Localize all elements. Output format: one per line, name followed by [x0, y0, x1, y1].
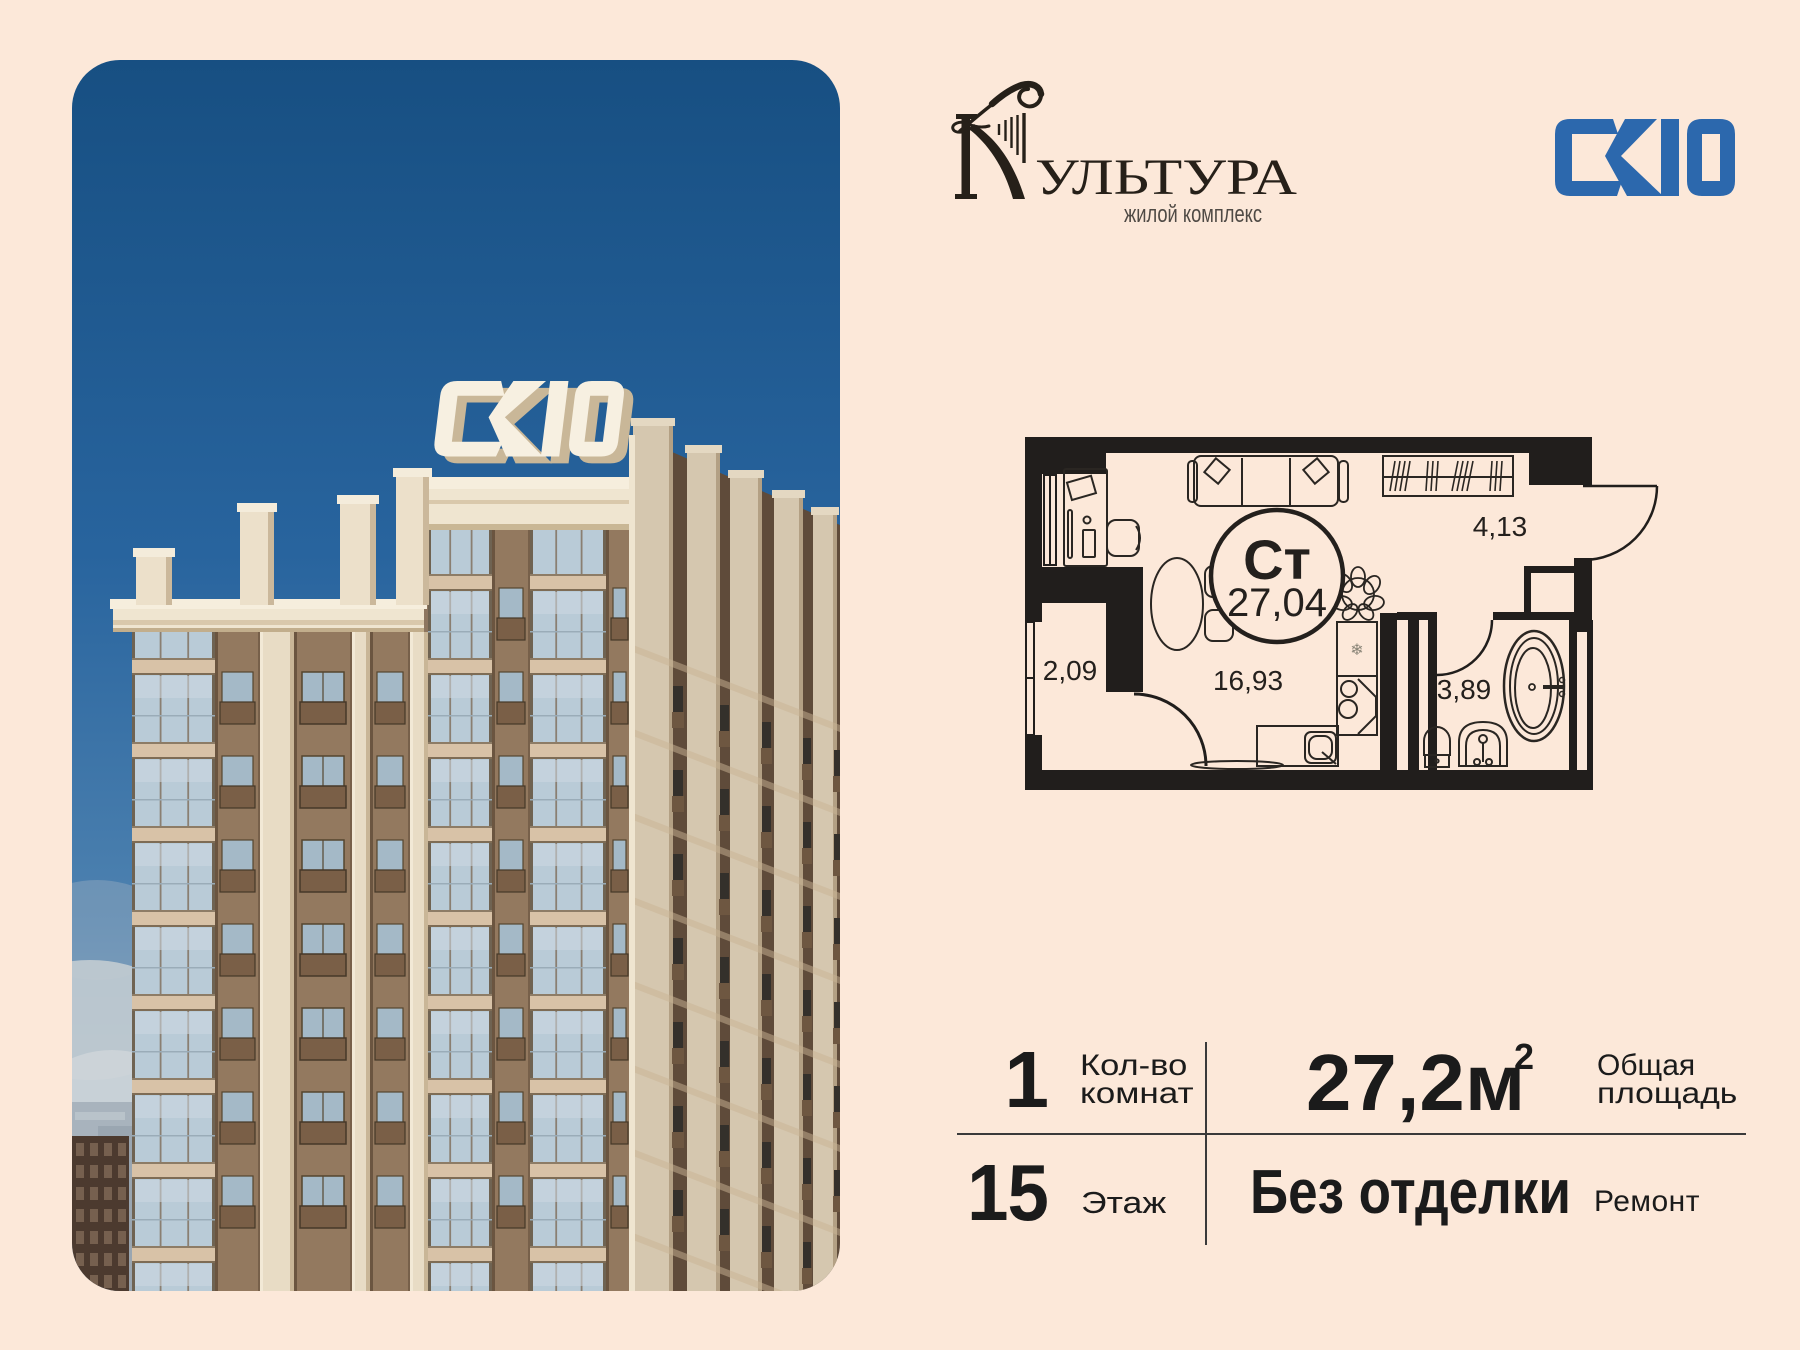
- svg-text:3,89: 3,89: [1437, 674, 1492, 705]
- svg-text:2,09: 2,09: [1043, 655, 1098, 686]
- svg-text:16,93: 16,93: [1213, 665, 1283, 696]
- svg-text:❄: ❄: [1350, 642, 1363, 659]
- svg-text:4,13: 4,13: [1473, 511, 1528, 542]
- svg-text:УЛЬТУРА: УЛЬТУРА: [1035, 150, 1297, 206]
- svg-text:жилой комплекс: жилой комплекс: [1124, 201, 1262, 228]
- svg-text:27,04: 27,04: [1227, 581, 1327, 625]
